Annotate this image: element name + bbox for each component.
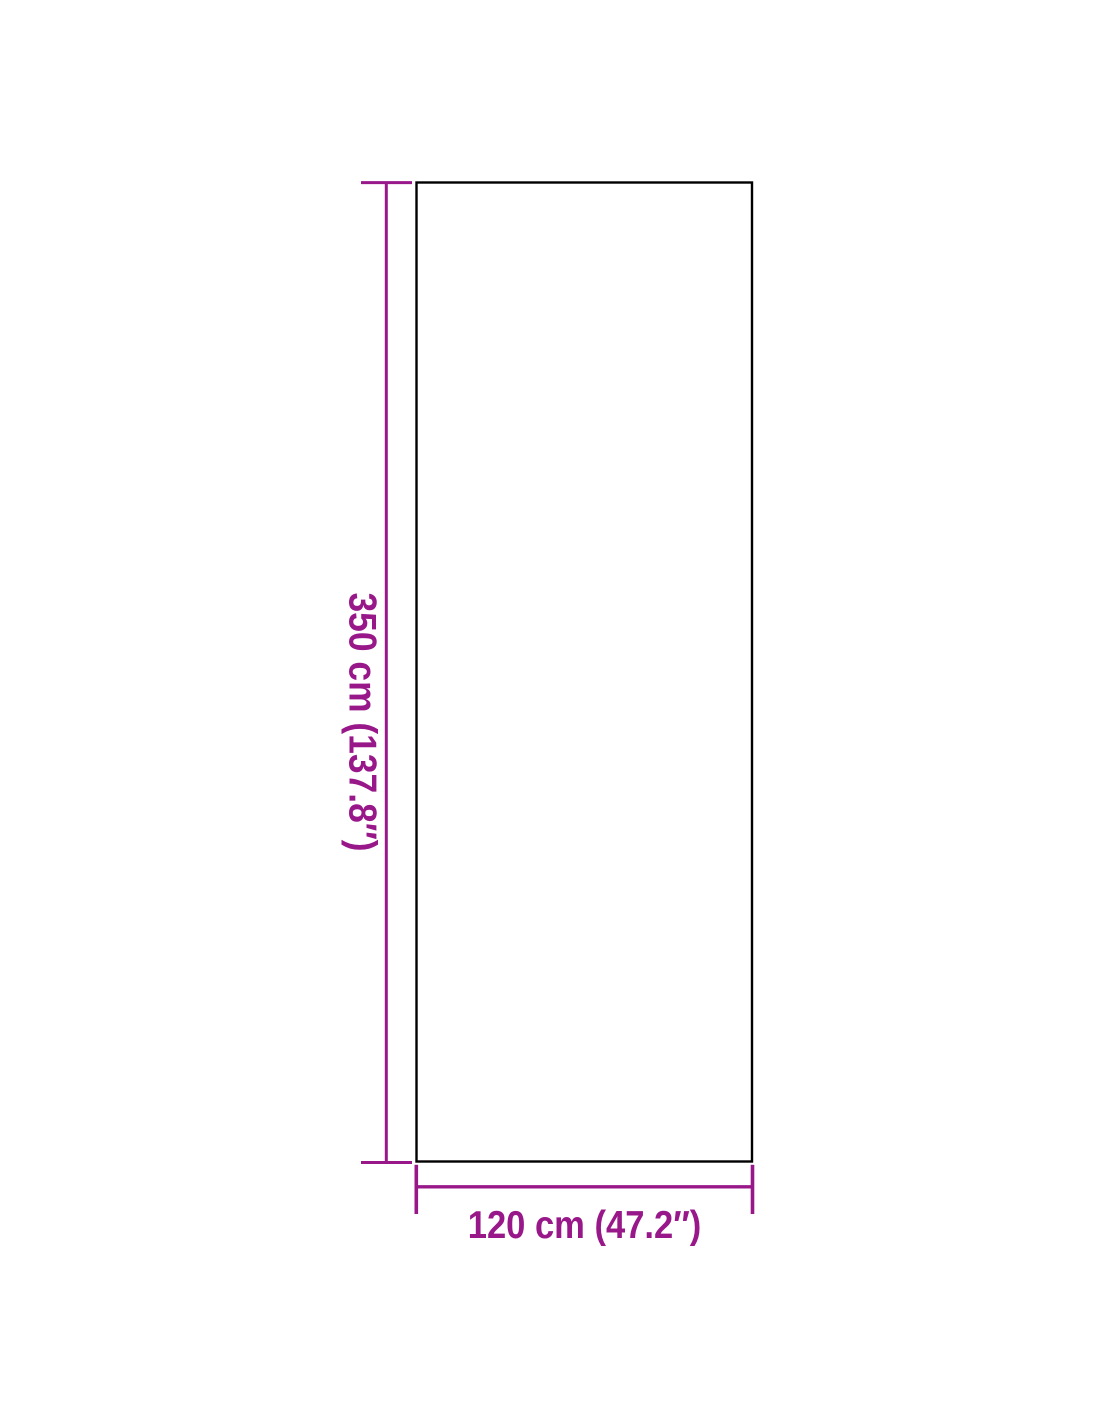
svg-text:350 cm (137.8″): 350 cm (137.8″): [340, 593, 383, 852]
svg-text:120 cm (47.2″): 120 cm (47.2″): [468, 1204, 702, 1247]
